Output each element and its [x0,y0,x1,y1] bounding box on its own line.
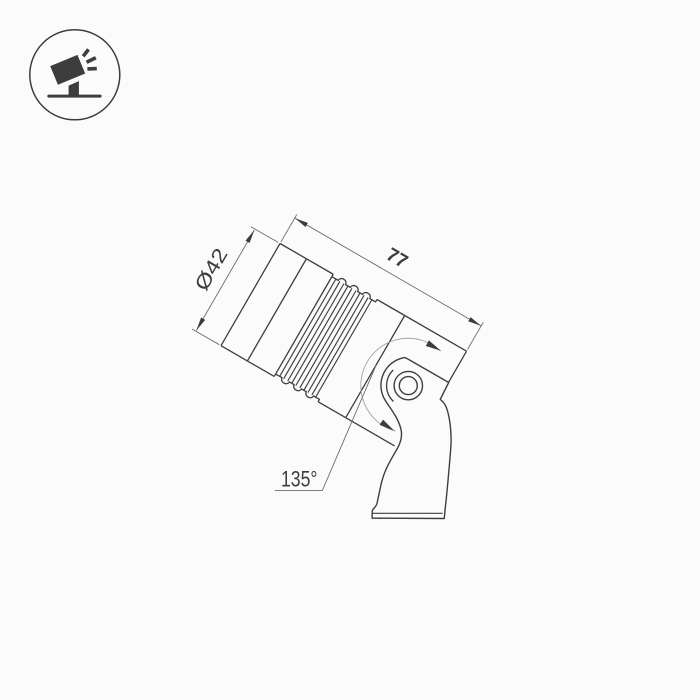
svg-text:135°: 135° [281,466,318,491]
